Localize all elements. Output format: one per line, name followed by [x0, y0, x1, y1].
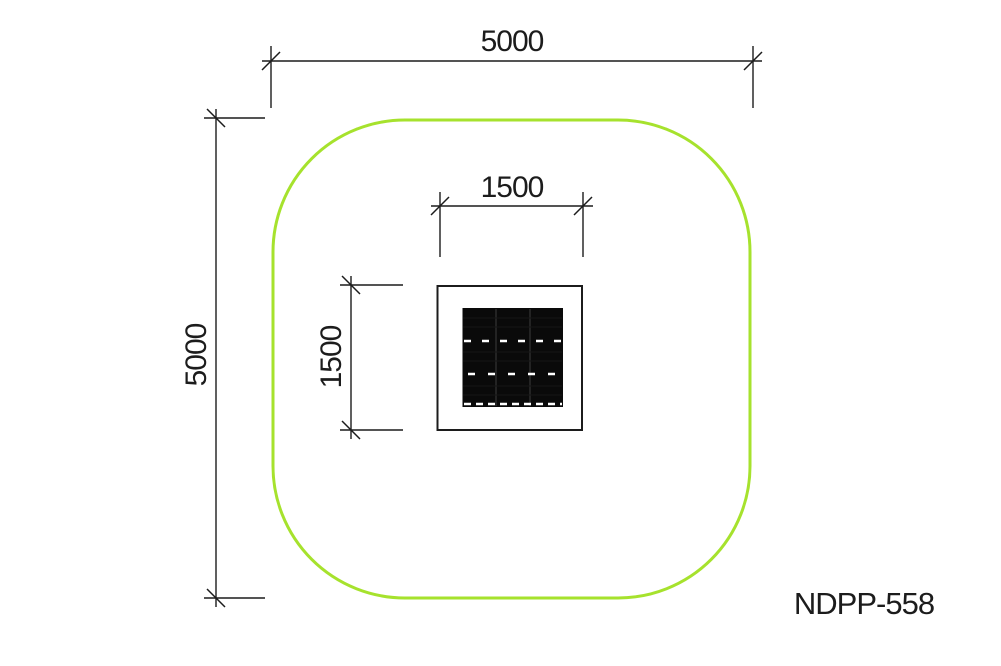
rubber-mat-fill [463, 308, 564, 407]
dimension-equipment-width: 1500 [431, 171, 593, 257]
plan-view-svg: 5000 5000 1500 1500 [0, 0, 1001, 666]
dimension-value-safety-zone-height: 5000 [180, 323, 213, 386]
dimension-value-equipment-height: 1500 [315, 325, 348, 388]
product-code-label: NDPP-558 [794, 586, 934, 621]
dimension-value-equipment-width: 1500 [481, 171, 544, 204]
dimension-equipment-height: 1500 [315, 276, 403, 439]
dimension-value-safety-zone-width: 5000 [481, 25, 544, 58]
rubber-mat [463, 308, 564, 407]
dimension-safety-zone-width: 5000 [262, 25, 762, 108]
dimension-safety-zone-height: 5000 [180, 109, 265, 607]
plan-drawing-canvas: 5000 5000 1500 1500 [0, 0, 1001, 666]
